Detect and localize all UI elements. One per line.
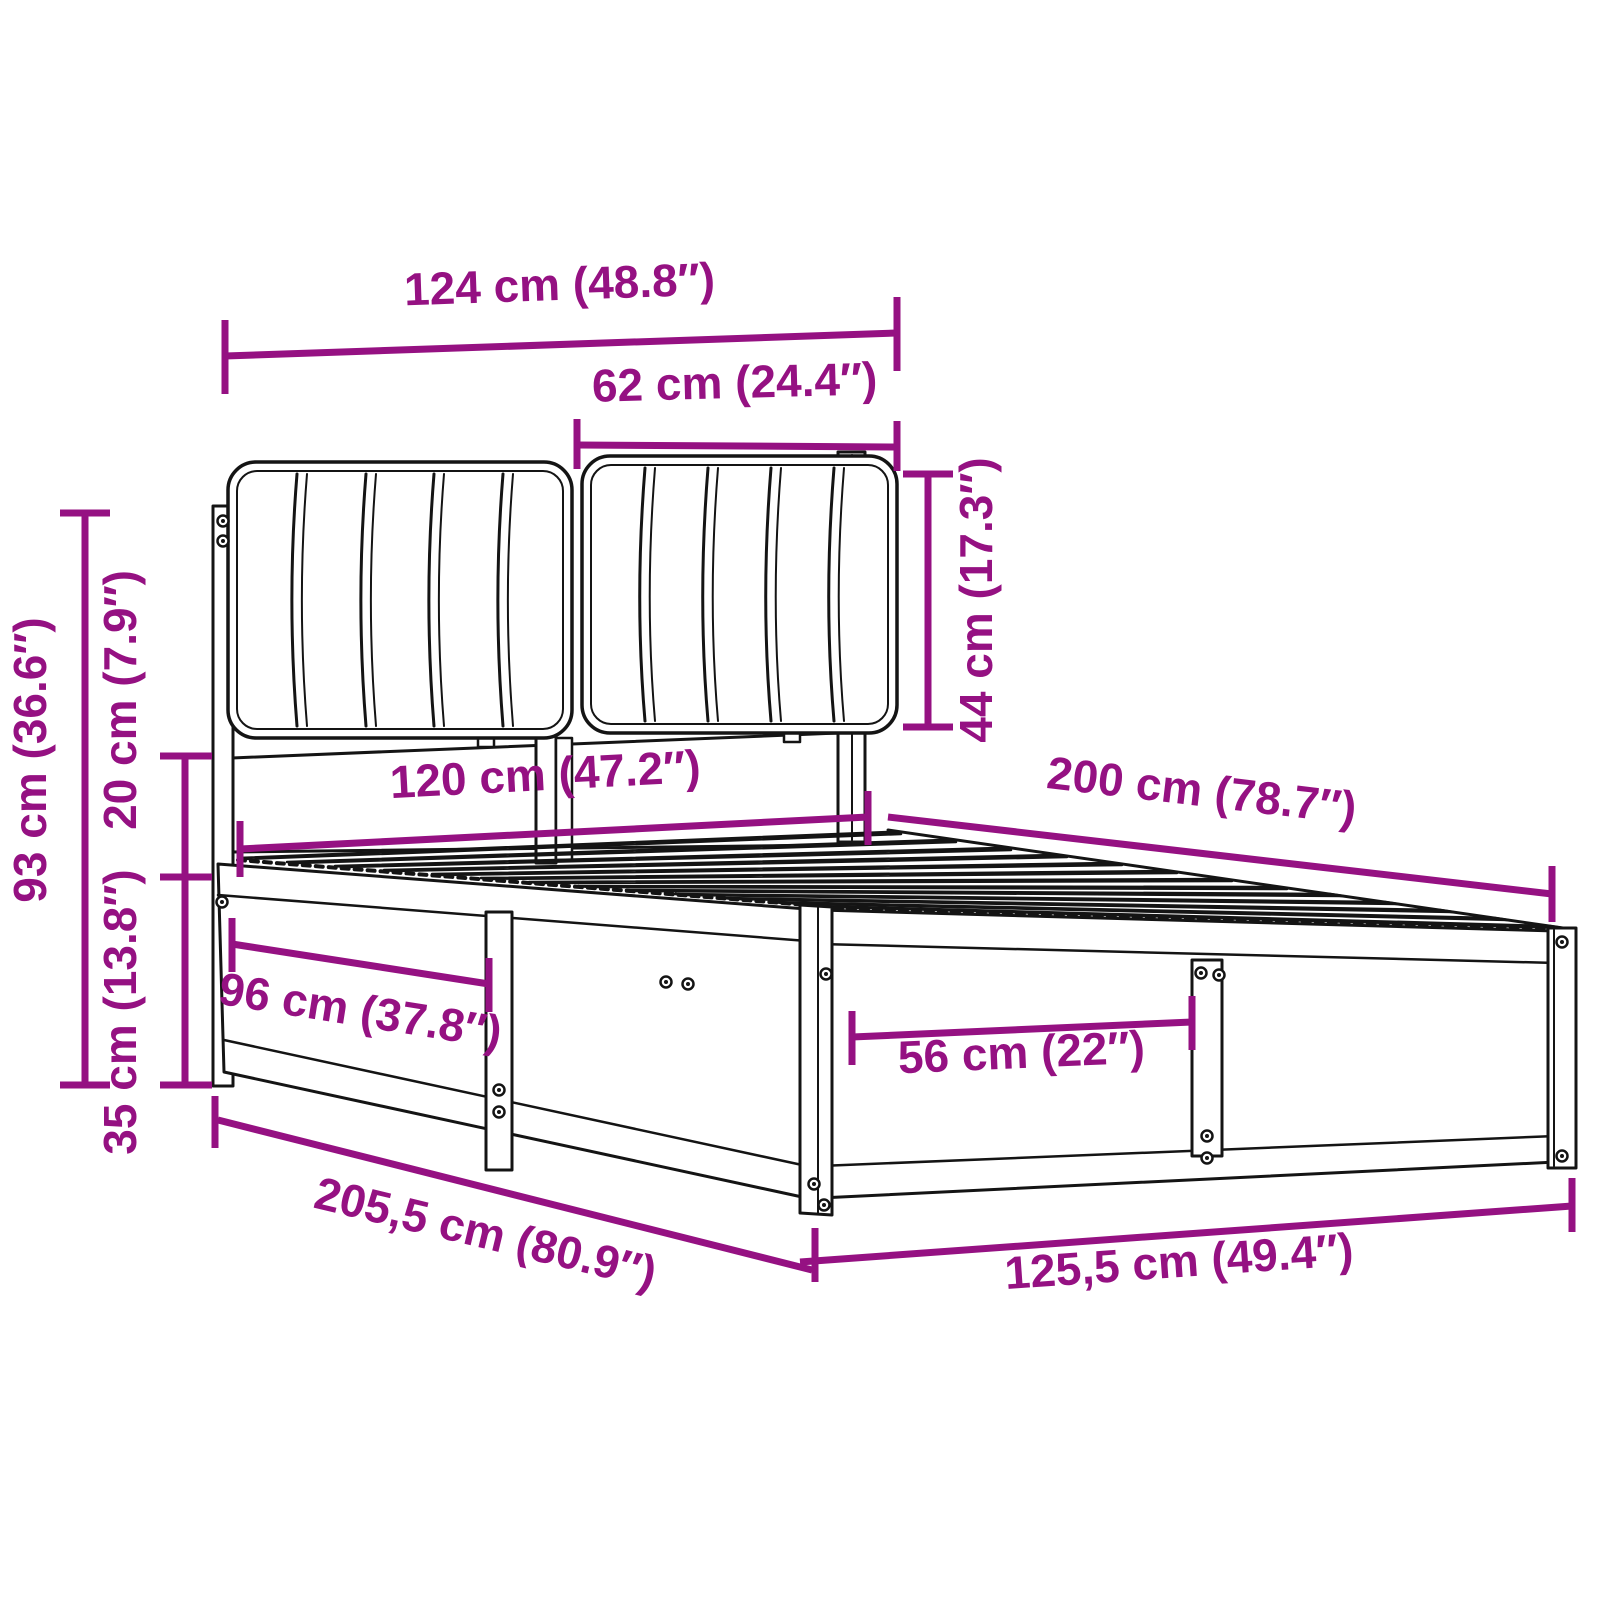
dim-line-gap-and-frame-height bbox=[160, 756, 212, 1085]
dim-label-headboard-width: 124 cm (48.8″) bbox=[403, 253, 716, 316]
bed-frame-dimension-diagram: 124 cm (48.8″) 62 cm (24.4″) 44 cm (17.3… bbox=[0, 0, 1600, 1600]
slat bbox=[529, 879, 1232, 883]
dim-label-gap-height: 20 cm (7.9″) bbox=[94, 570, 146, 830]
dim-label-mattress-length: 200 cm (78.7″) bbox=[1044, 746, 1359, 834]
right-leg bbox=[1548, 928, 1576, 1168]
dim-label-cushion-height: 44 cm (17.3″) bbox=[950, 457, 1002, 742]
bed-frame-drawing bbox=[213, 452, 1576, 1215]
dim-label-total-width: 125,5 cm (49.4″) bbox=[1003, 1223, 1355, 1299]
corner-leg bbox=[800, 905, 832, 1215]
foot-mid-brace bbox=[1192, 960, 1222, 1156]
dim-label-cushion-width: 62 cm (24.4″) bbox=[591, 352, 878, 411]
dim-label-front-section: 56 cm (22″) bbox=[897, 1021, 1146, 1084]
headboard-left-cushion bbox=[228, 462, 572, 738]
dim-label-headboard-height: 93 cm (36.6″) bbox=[4, 617, 56, 902]
headboard-right-cushion bbox=[582, 456, 897, 733]
slat bbox=[578, 886, 1287, 889]
dim-label-frame-height: 35 cm (13.8″) bbox=[94, 869, 146, 1154]
dim-line-cushion-height bbox=[903, 474, 953, 727]
side-rail-face bbox=[218, 860, 820, 1200]
